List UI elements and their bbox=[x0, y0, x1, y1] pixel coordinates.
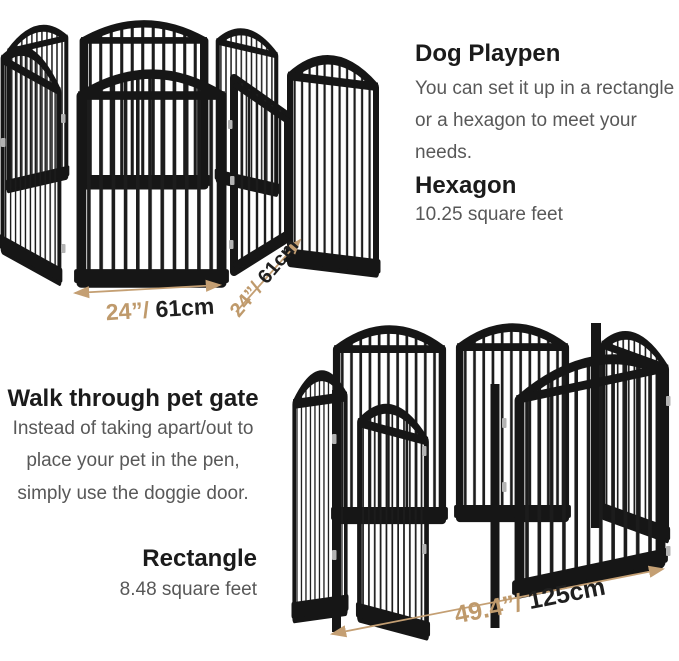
dimension-inches: 24”/ bbox=[105, 297, 150, 326]
product-infographic: 24”/ 61cm 24”/ 61cm 49.4”/ 125cm Dog Pla… bbox=[0, 0, 679, 661]
rectangle-area-label: 8.48 square feet bbox=[0, 579, 257, 601]
gate-description-line: Instead of taking apart/out to bbox=[0, 418, 266, 440]
gate-title: Walk through pet gate bbox=[0, 385, 266, 413]
dimension-cm: 61cm bbox=[148, 293, 215, 323]
playpen-title: Dog Playpen bbox=[415, 40, 560, 68]
playpen-description-line: You can set it up in a rectangle bbox=[415, 78, 674, 100]
rectangle-shape-label: Rectangle bbox=[0, 545, 257, 573]
playpen-description-line: or a hexagon to meet your bbox=[415, 110, 637, 132]
playpen-description-line: needs. bbox=[415, 142, 472, 164]
hexagon-area-label: 10.25 square feet bbox=[415, 204, 563, 226]
gate-description-line: simply use the doggie door. bbox=[0, 483, 266, 505]
gate-description-line: place your pet in the pen, bbox=[0, 450, 266, 472]
hexagon-shape-label: Hexagon bbox=[415, 172, 516, 200]
